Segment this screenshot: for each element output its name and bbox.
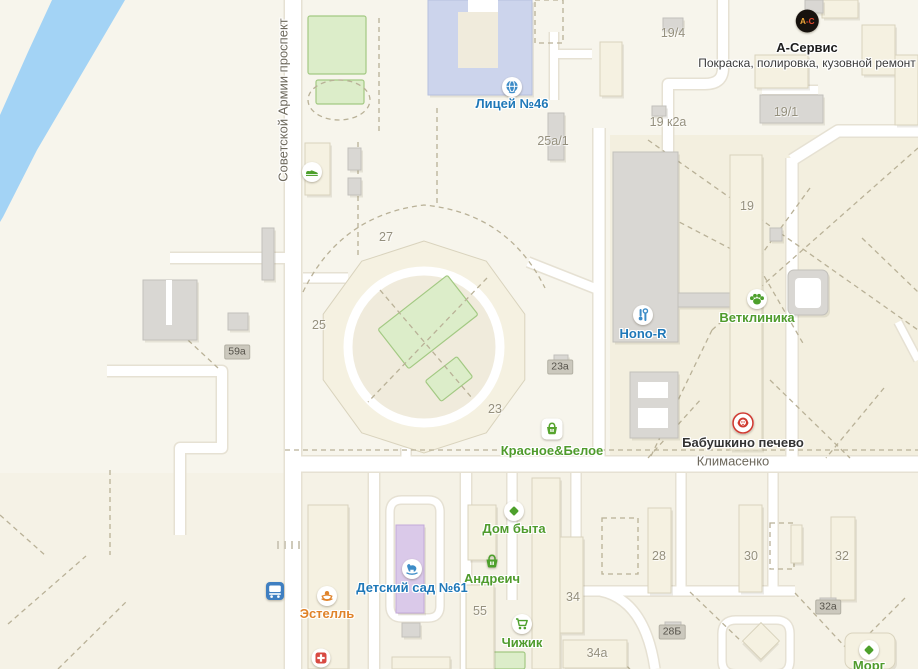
poi-label[interactable]: Hono-R	[620, 326, 667, 341]
poi-label[interactable]: Морг	[853, 658, 885, 669]
paw-icon[interactable]	[746, 288, 768, 310]
poi-label[interactable]: Лицей №46	[476, 96, 549, 111]
building-number: 19/4	[661, 26, 685, 40]
sneaker-icon[interactable]	[301, 161, 323, 183]
poi-label[interactable]: Дом быта	[482, 521, 545, 536]
poi-label[interactable]: Детский сад №61	[356, 580, 467, 595]
building-number: 25	[312, 318, 326, 332]
poi-label[interactable]: Ветклиника	[719, 310, 794, 325]
poi-label[interactable]: Чижик	[502, 635, 543, 650]
poi-label[interactable]: Красное&Белое	[501, 443, 604, 458]
business-subtitle: Покраска, полировка, кузовной ремонт	[698, 56, 915, 70]
map-canvas[interactable]: Советской Армии проспект Климасенко А-С …	[0, 0, 918, 669]
bus-icon[interactable]	[265, 581, 285, 601]
business-title[interactable]: А-Сервис	[698, 40, 915, 55]
diamond-icon[interactable]	[503, 500, 525, 522]
street-label-klimasenko: Климасенко	[697, 454, 770, 469]
street-label-sovetskoy-armii-prospekt: Советской Армии проспект	[276, 18, 291, 181]
building-number: 55	[473, 604, 487, 618]
building-badge: 28Б	[659, 625, 686, 640]
building-badge: 23а	[547, 360, 573, 375]
building-number: 19	[740, 199, 754, 213]
pharmacy-icon[interactable]	[311, 648, 331, 668]
cart-icon[interactable]	[511, 613, 533, 635]
building-number: 30	[744, 549, 758, 563]
building-number: 28	[652, 549, 666, 563]
building-number: 23	[488, 402, 502, 416]
svg-text:А-С: А-С	[800, 17, 815, 26]
spa-icon[interactable]	[316, 585, 338, 607]
basket-square-icon[interactable]	[540, 417, 564, 441]
poi-label[interactable]: Андреич	[464, 571, 520, 586]
globe-icon[interactable]	[501, 76, 523, 98]
map-overlay: Советской Армии проспект Климасенко А-С …	[0, 0, 918, 669]
poi-label[interactable]: Бабушкино печево	[682, 435, 804, 450]
building-number: 34	[566, 590, 580, 604]
basket-icon[interactable]	[482, 551, 502, 571]
building-number: 19/1	[774, 105, 798, 119]
tools-icon[interactable]	[632, 304, 654, 326]
horse-icon[interactable]	[401, 558, 423, 580]
a-service-icon[interactable]: А-С	[794, 8, 820, 34]
building-badge: 59а	[224, 345, 250, 360]
poi-label[interactable]: Эстелль	[300, 606, 355, 621]
building-number: 19 к2а	[650, 115, 687, 129]
business-card-a-service[interactable]: А-С А-Сервис Покраска, полировка, кузовн…	[698, 8, 915, 70]
babushka-icon[interactable]	[731, 411, 755, 435]
building-badge: 32а	[815, 600, 841, 615]
building-number: 25а/1	[537, 134, 568, 148]
building-number: 34а	[587, 646, 608, 660]
building-number: 32	[835, 549, 849, 563]
building-number: 27	[379, 230, 393, 244]
